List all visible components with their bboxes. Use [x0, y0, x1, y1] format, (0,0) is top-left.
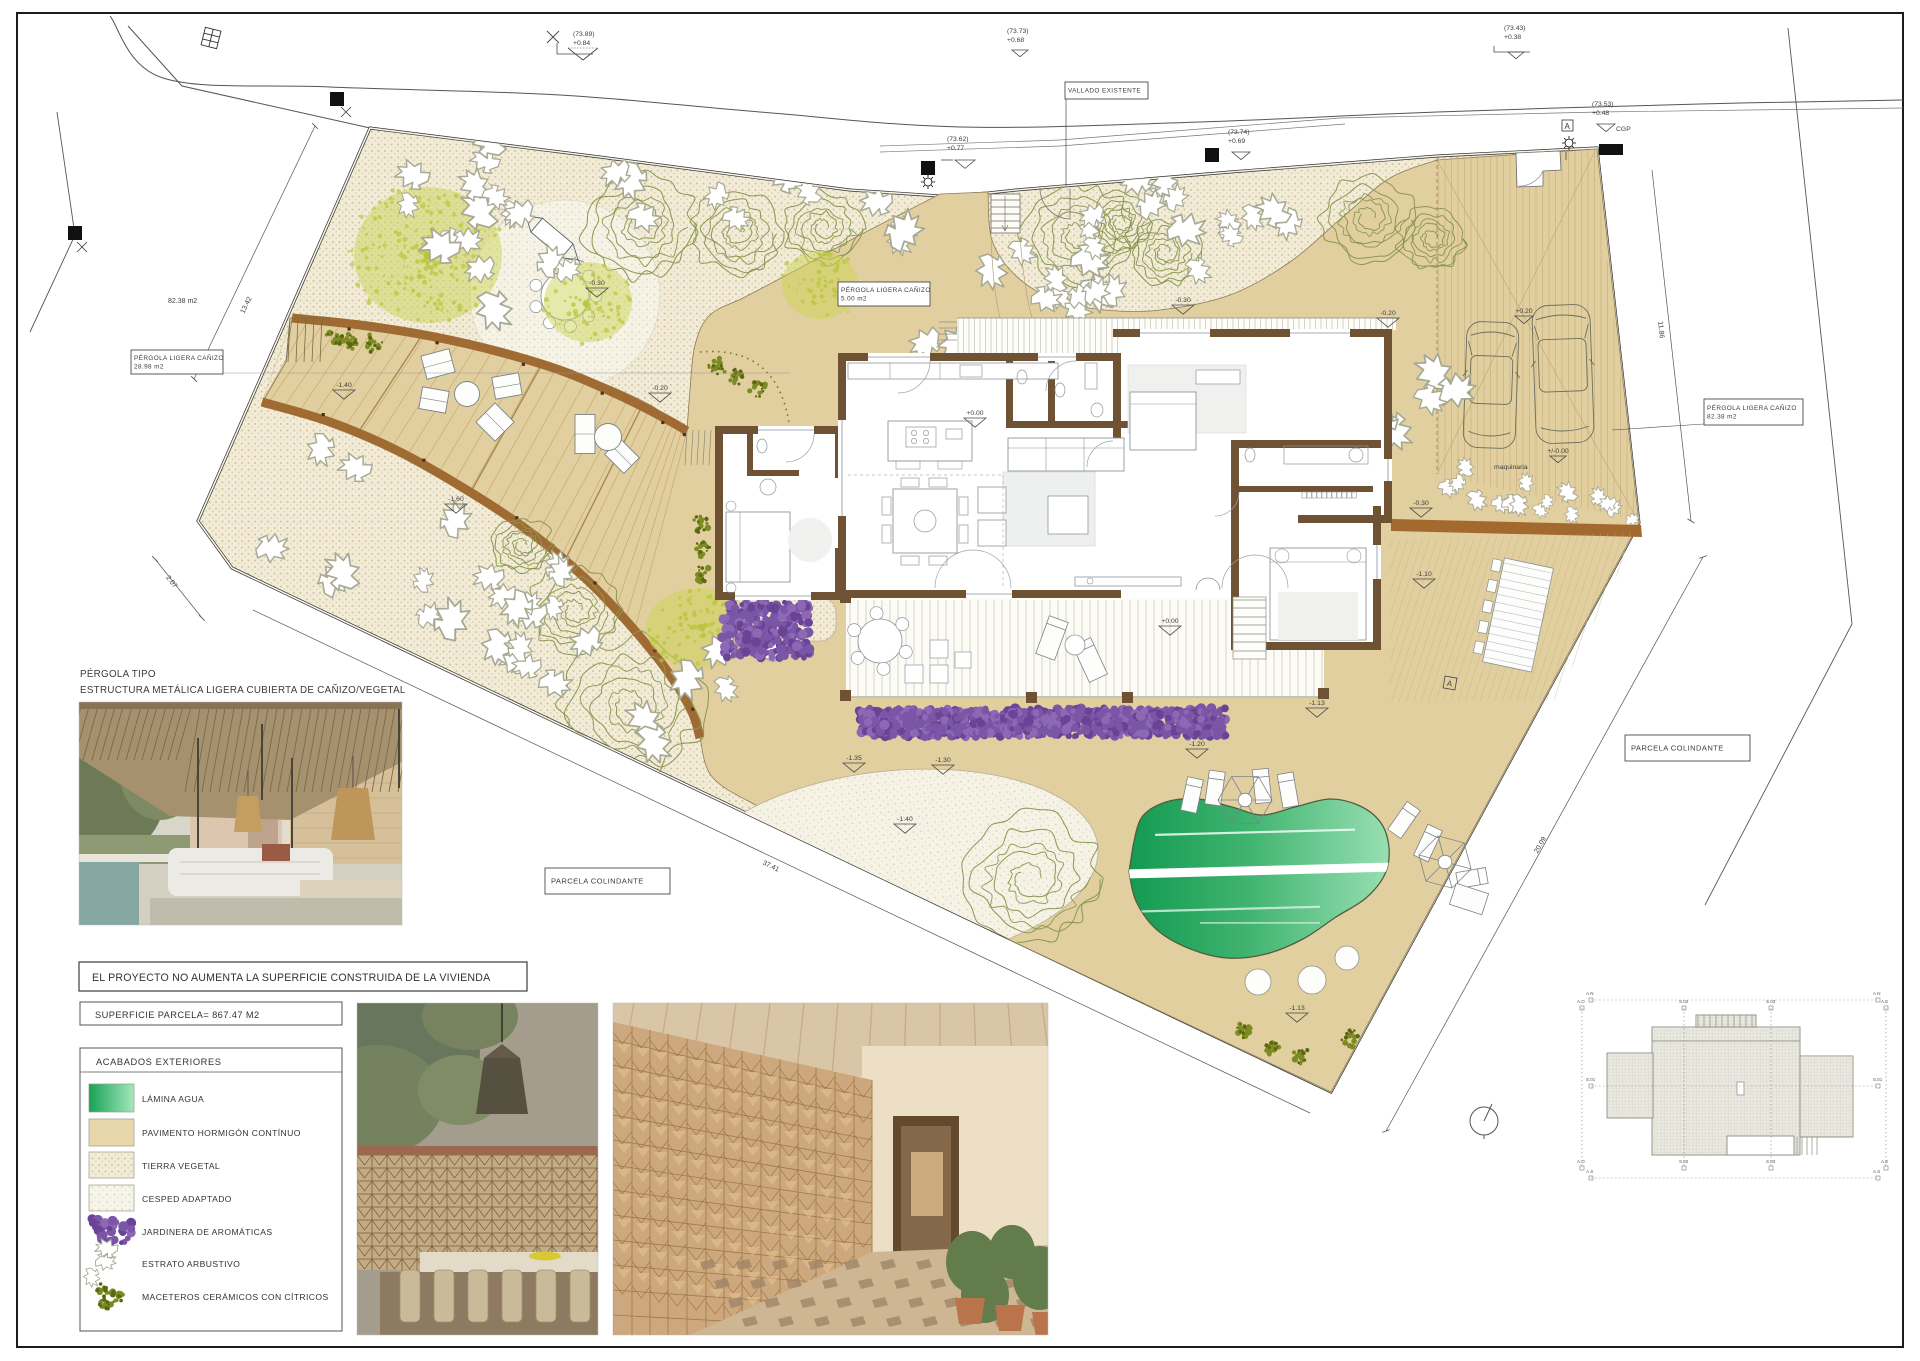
svg-text:S.02: S.02 — [1679, 1159, 1689, 1164]
svg-text:5.00 m2: 5.00 m2 — [841, 295, 867, 302]
svg-text:28.98 m2: 28.98 m2 — [134, 363, 164, 370]
svg-text:A.E: A.E — [1881, 1159, 1888, 1164]
svg-text:S.03: S.03 — [1766, 999, 1776, 1004]
svg-text:-1.20: -1.20 — [1189, 741, 1205, 748]
svg-text:PARCELA COLINDANTE: PARCELA COLINDANTE — [551, 877, 644, 886]
svg-text:-0.20: -0.20 — [652, 385, 668, 392]
svg-text:-0.20: -0.20 — [1380, 310, 1396, 317]
svg-text:A.O: A.O — [1577, 1159, 1585, 1164]
svg-text:LÁMINA AGUA: LÁMINA AGUA — [142, 1094, 204, 1104]
svg-text:VALLADO EXISTENTE: VALLADO EXISTENTE — [1068, 88, 1141, 95]
svg-text:S.02: S.02 — [1679, 999, 1689, 1004]
svg-text:S.03: S.03 — [1766, 1159, 1776, 1164]
svg-text:+0.84: +0.84 — [573, 40, 590, 47]
svg-text:PÉRGOLA LIGERA CAÑIZO: PÉRGOLA LIGERA CAÑIZO — [841, 285, 931, 294]
svg-text:-1.13: -1.13 — [1289, 1005, 1305, 1012]
svg-text:-1.60: -1.60 — [448, 496, 464, 503]
svg-text:-1.30: -1.30 — [935, 757, 951, 764]
svg-text:-1.40: -1.40 — [336, 382, 352, 389]
svg-text:SUPERFICIE PARCELA= 867.47 M2: SUPERFICIE PARCELA= 867.47 M2 — [95, 1010, 260, 1020]
svg-text:maquinaria: maquinaria — [1494, 464, 1528, 471]
svg-text:PAVIMENTO HORMIGÓN CONTÍNUO: PAVIMENTO HORMIGÓN CONTÍNUO — [142, 1128, 301, 1138]
svg-text:+0.00: +0.00 — [1161, 618, 1178, 625]
svg-text:(73.43): (73.43) — [1504, 25, 1526, 32]
svg-text:A.N: A.N — [1873, 991, 1881, 996]
svg-text:(73.89): (73.89) — [573, 31, 595, 38]
svg-text:A.E: A.E — [1881, 999, 1888, 1004]
svg-text:A.S: A.S — [1873, 1169, 1880, 1174]
svg-text:-1.10: -1.10 — [1416, 571, 1432, 578]
svg-text:ESTRATO ARBUSTIVO: ESTRATO ARBUSTIVO — [142, 1259, 240, 1269]
svg-text:MACETEROS CERÁMICOS CON CÍTRIC: MACETEROS CERÁMICOS CON CÍTRICOS — [142, 1292, 329, 1302]
svg-text:A.S: A.S — [1586, 1169, 1593, 1174]
svg-text:ESTRUCTURA METÁLICA LIGERA CUB: ESTRUCTURA METÁLICA LIGERA CUBIERTA DE C… — [80, 685, 406, 696]
svg-text:(73.62): (73.62) — [947, 136, 969, 143]
svg-text:CESPED ADAPTADO: CESPED ADAPTADO — [142, 1194, 232, 1204]
svg-text:82.38 m2: 82.38 m2 — [168, 298, 197, 305]
svg-text:+0.00: +0.00 — [966, 410, 983, 417]
svg-text:A: A — [1565, 122, 1571, 131]
svg-text:+0.38: +0.38 — [1504, 34, 1521, 41]
svg-text:(73.74): (73.74) — [1228, 129, 1250, 136]
svg-text:EL PROYECTO NO AUMENTA LA SUPE: EL PROYECTO NO AUMENTA LA SUPERFICIE CON… — [92, 972, 491, 984]
svg-text:+0.20: +0.20 — [1515, 308, 1532, 315]
svg-text:-1.13: -1.13 — [1309, 700, 1325, 707]
svg-text:PÉRGOLA LIGERA CAÑIZO: PÉRGOLA LIGERA CAÑIZO — [134, 353, 224, 362]
svg-text:JARDINERA DE AROMÁTICAS: JARDINERA DE AROMÁTICAS — [142, 1227, 273, 1237]
svg-text:CGP: CGP — [1616, 126, 1631, 133]
svg-text:-0.30: -0.30 — [1175, 297, 1191, 304]
svg-text:PÉRGOLA TIPO: PÉRGOLA TIPO — [80, 669, 156, 680]
svg-text:A.N: A.N — [1586, 991, 1594, 996]
svg-text:S.01: S.01 — [1873, 1077, 1883, 1082]
svg-text:A.O: A.O — [1577, 999, 1585, 1004]
svg-text:+0.48: +0.48 — [1592, 110, 1609, 117]
svg-text:TIERRA VEGETAL: TIERRA VEGETAL — [142, 1161, 220, 1171]
svg-text:S.01: S.01 — [1586, 1077, 1596, 1082]
svg-text:-0.30: -0.30 — [589, 280, 605, 287]
svg-text:-1.35: -1.35 — [846, 755, 862, 762]
svg-text:ACABADOS EXTERIORES: ACABADOS EXTERIORES — [96, 1057, 222, 1067]
svg-text:PÉRGOLA LIGERA CAÑIZO: PÉRGOLA LIGERA CAÑIZO — [1707, 403, 1797, 412]
svg-text:+0.77: +0.77 — [947, 145, 964, 152]
svg-text:(73.73): (73.73) — [1007, 28, 1029, 35]
svg-text:(73.53): (73.53) — [1592, 101, 1614, 108]
svg-text:PARCELA COLINDANTE: PARCELA COLINDANTE — [1631, 744, 1724, 753]
svg-text:+0.68: +0.68 — [1007, 37, 1024, 44]
svg-text:-1.40: -1.40 — [897, 816, 913, 823]
svg-text:+/-0.00: +/-0.00 — [1547, 448, 1569, 455]
svg-text:82.38 m2: 82.38 m2 — [1707, 413, 1737, 420]
svg-text:-0.30: -0.30 — [1413, 500, 1429, 507]
svg-text:+0.69: +0.69 — [1228, 138, 1245, 145]
